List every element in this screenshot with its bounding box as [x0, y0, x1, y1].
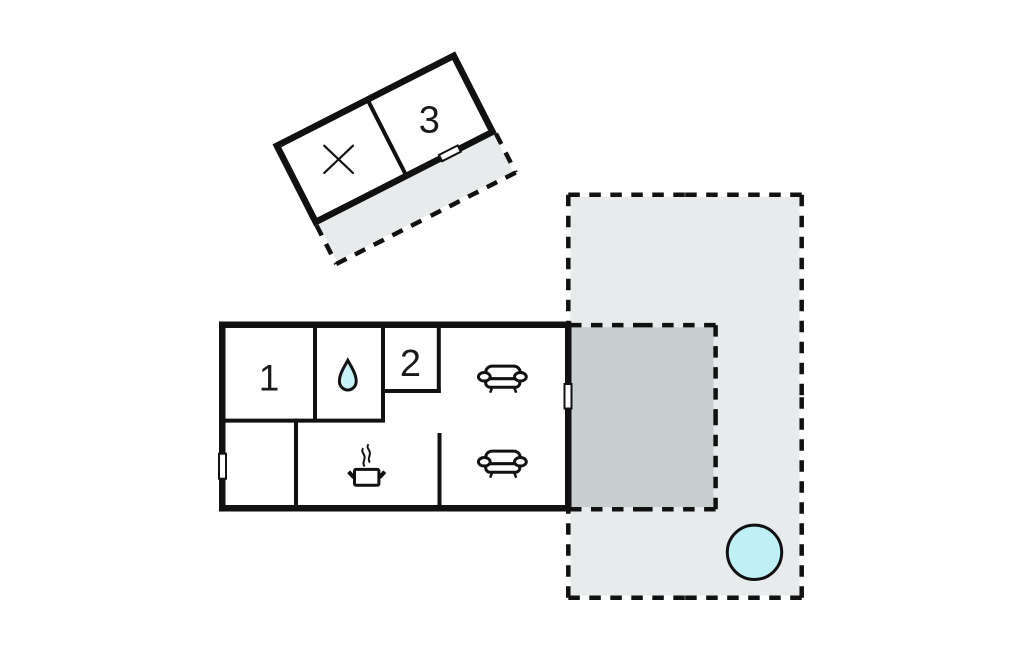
svg-text:3: 3	[419, 99, 440, 141]
svg-text:2: 2	[400, 343, 421, 385]
svg-text:1: 1	[259, 358, 280, 399]
